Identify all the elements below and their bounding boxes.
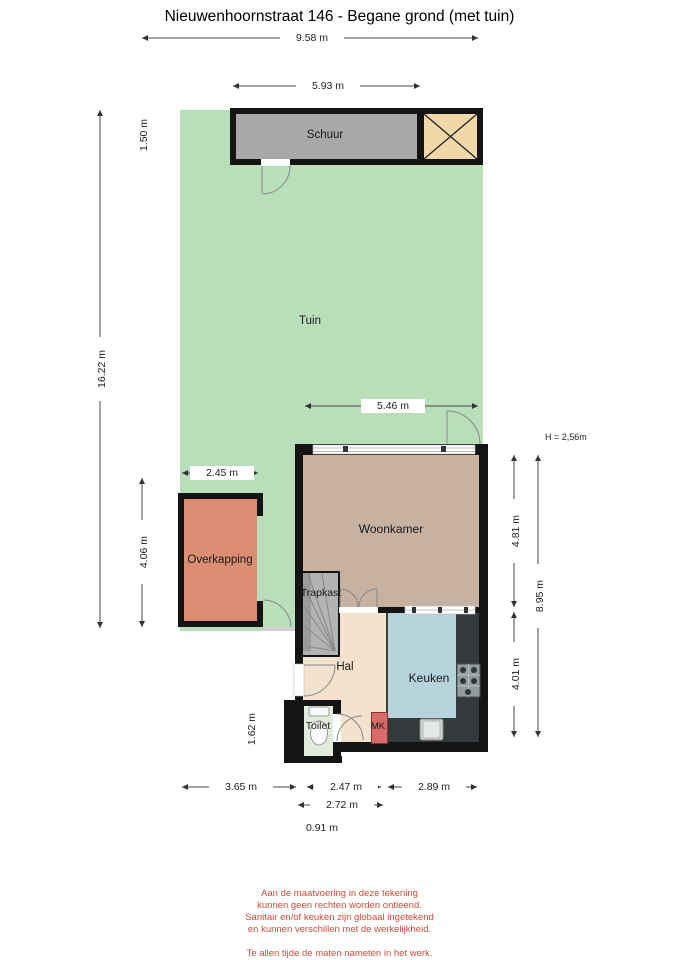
ceiling-height-note: H = 2,56m <box>543 430 589 444</box>
dim-bottom-left: 3.65 m <box>209 780 273 794</box>
overkapping-wall-bottom <box>178 621 263 627</box>
room-label-overkapping: Overkapping <box>175 554 265 566</box>
kitchen-counter-bottom <box>388 718 456 742</box>
dim-bottom-mid: 2.47 m <box>314 780 378 794</box>
kitchen-floor <box>388 613 456 718</box>
storage-box-floor <box>424 114 477 159</box>
room-label-hal: Hal <box>325 661 365 673</box>
dim-house-depth: 8.95 m <box>533 564 547 628</box>
dim-bottom-mid2: 2.72 m <box>310 798 374 812</box>
room-label-tuin: Tuin <box>290 315 330 327</box>
room-label-schuur: Schuur <box>295 129 355 141</box>
disclaimer-line: Aan de maatvoering in deze tekening <box>0 888 679 900</box>
wall-bump-bottom <box>284 756 342 763</box>
dim-plot-width: 9.58 m <box>280 31 344 45</box>
dim-schuur-width: 5.93 m <box>296 79 360 93</box>
kitchen-counter-right <box>456 613 480 742</box>
note-line: Te allen tijde de maten nameten in het w… <box>0 948 679 960</box>
overkapping-wall-right-top <box>257 493 263 516</box>
room-label-mk: MK <box>368 721 388 732</box>
dim-plot-depth: 16.22 m <box>95 337 109 401</box>
wall-right <box>479 444 488 752</box>
dim-overkapping-width: 2.45 m <box>190 466 254 480</box>
room-label-woonkamer: Woonkamer <box>351 522 431 536</box>
dim-woonkamer-depth: 4.81 m <box>509 499 523 563</box>
disclaimer-line: en kunnen verschillen met de werkelijkhe… <box>0 924 679 936</box>
room-label-trapkast: Trapkast <box>296 587 346 599</box>
dim-schuur-depth: 1.50 m <box>137 103 151 167</box>
room-label-toilet: Toilet <box>298 720 338 732</box>
disclaimer-line: Sanitair en/of keuken zijn globaal inget… <box>0 912 679 924</box>
dim-woonkamer-width: 5.46 m <box>361 399 425 413</box>
dim-bottom-small: 0.91 m <box>290 821 354 835</box>
stair-closet-shade <box>303 573 311 651</box>
disclaimer-line: kunnen geen rechten worden ontleend. <box>0 900 679 912</box>
overkapping-wall-right-bottom <box>257 601 263 627</box>
disclaimer-block: Aan de maatvoering in deze tekening kunn… <box>0 888 679 960</box>
wall-top <box>295 444 488 455</box>
dim-bottom-right: 2.89 m <box>402 780 466 794</box>
dim-toilet-depth: 1.62 m <box>245 697 259 761</box>
page-title: Nieuwenhoornstraat 146 - Begane grond (m… <box>0 8 679 26</box>
overkapping-wall-top <box>178 493 263 499</box>
room-label-keuken: Keuken <box>399 671 459 685</box>
dim-keuken-depth: 4.01 m <box>509 642 523 706</box>
wall-bottom-main <box>341 742 488 752</box>
dim-overkapping-depth: 4.06 m <box>137 520 151 584</box>
floorplan-canvas: Nieuwenhoornstraat 146 - Begane grond (m… <box>0 0 679 960</box>
